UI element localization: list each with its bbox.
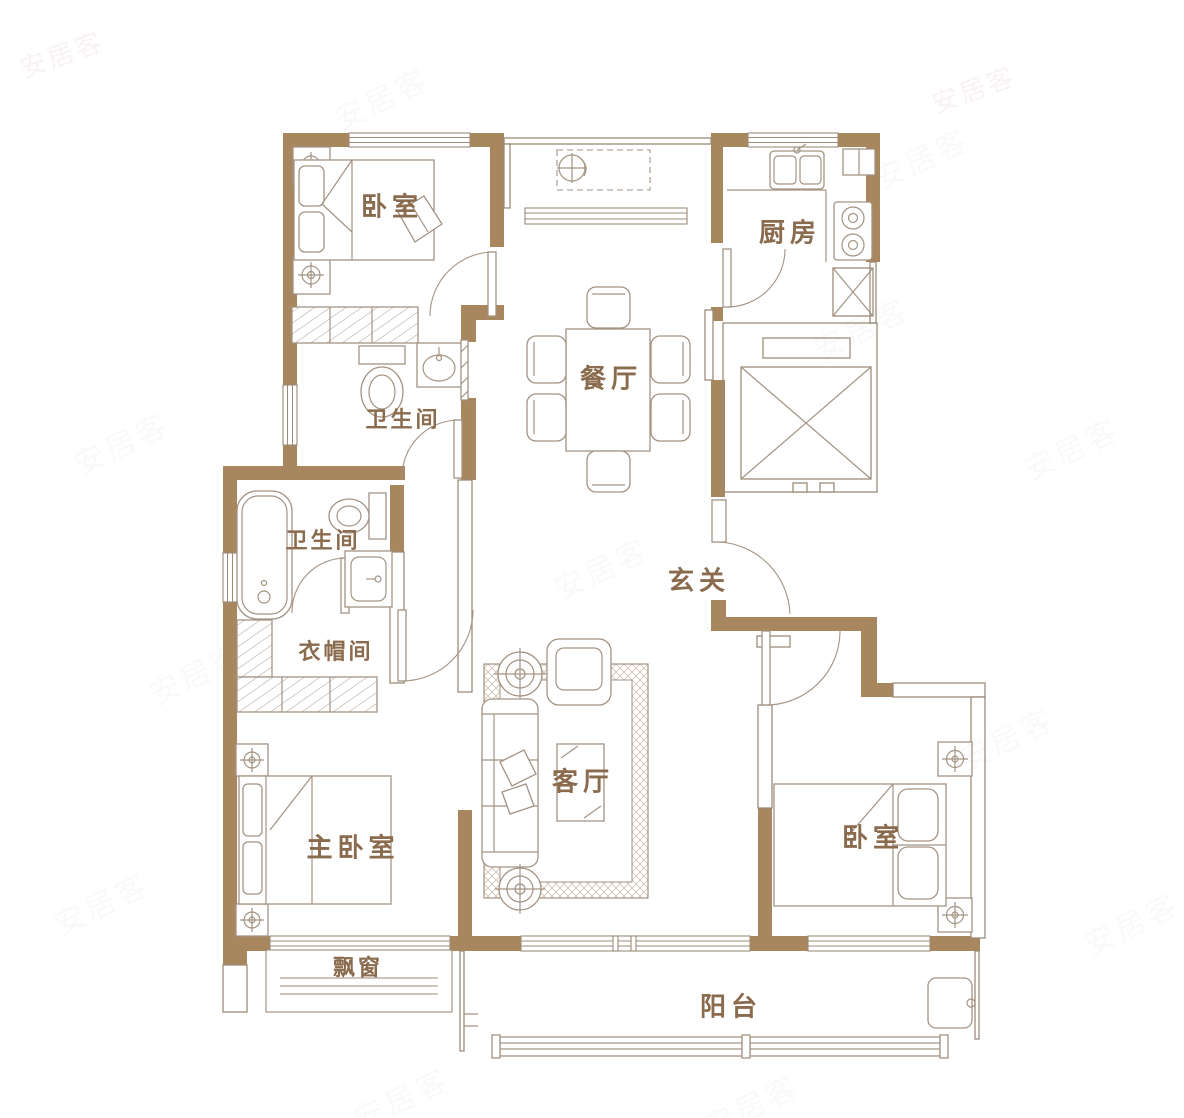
washing-machine-icon — [928, 978, 975, 1028]
sink-icon — [345, 551, 392, 607]
label-entry: 玄关 — [668, 561, 730, 598]
label-bay-window: 飘窗 — [333, 950, 383, 982]
floorplan-stage: 卧室 厨房 餐厅 卫生间 卫生间 玄关 衣帽间 主卧室 客厅 卧室 飘窗 阳台 … — [0, 0, 1184, 1118]
dining-window — [525, 208, 687, 224]
label-bath2: 卫生间 — [285, 523, 360, 555]
bedroom1-window — [349, 133, 470, 147]
bath2-fixtures — [237, 491, 392, 619]
floorplan-svg — [0, 0, 1184, 1118]
railing — [492, 1035, 948, 1058]
label-bedroom-top: 卧室 — [361, 187, 423, 224]
kitchen-door — [723, 249, 785, 307]
kitchen-window — [748, 133, 838, 147]
stove-icon — [834, 202, 872, 260]
bath2-window — [223, 553, 237, 602]
fridge-icon — [843, 149, 875, 175]
armchair — [547, 639, 611, 705]
nightstand — [236, 904, 268, 936]
chair — [587, 287, 630, 328]
bathtub-icon — [237, 491, 292, 619]
flue-shaft — [833, 268, 873, 316]
label-living: 客厅 — [552, 762, 614, 799]
label-dining: 餐厅 — [580, 359, 642, 396]
chair — [527, 394, 566, 441]
terrace-platform — [557, 150, 650, 190]
label-balcony: 阳台 — [700, 987, 762, 1024]
chair — [651, 336, 690, 383]
bedroom2-window — [808, 936, 930, 951]
bath1-window — [283, 385, 297, 445]
nightstand — [293, 257, 330, 294]
label-cloakroom: 衣帽间 — [298, 634, 373, 666]
chair — [587, 451, 630, 492]
chair — [527, 336, 566, 383]
chair — [651, 394, 690, 441]
bath2-door — [292, 558, 349, 613]
elevator-shaft — [723, 323, 877, 492]
master-bay-opening — [270, 936, 450, 951]
mirror — [461, 340, 468, 400]
living-balcony-door — [521, 936, 750, 951]
label-kitchen: 厨房 — [759, 213, 821, 250]
label-bath1: 卫生间 — [365, 402, 440, 434]
label-master: 主卧室 — [306, 828, 399, 865]
sofa — [482, 699, 538, 867]
fan-icon — [557, 153, 587, 183]
sink-icon — [417, 343, 462, 387]
label-bedroom-right: 卧室 — [842, 818, 904, 855]
partition-walls — [223, 138, 985, 1051]
bedroom1-wardrobe — [292, 307, 418, 343]
nightstand — [938, 742, 972, 776]
nightstand — [236, 744, 268, 776]
kitchen-sink-icon — [770, 144, 824, 189]
